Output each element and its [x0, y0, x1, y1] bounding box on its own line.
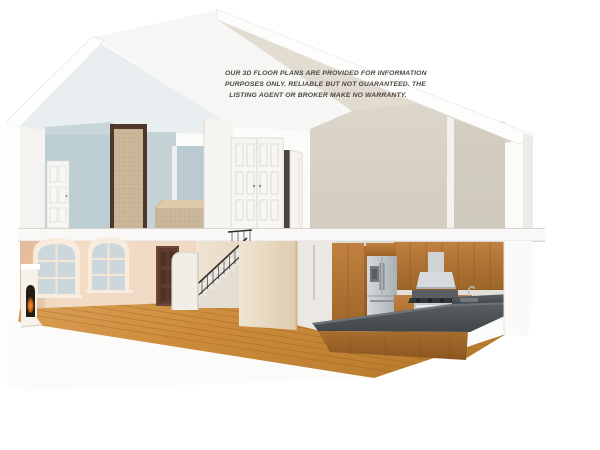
door-knob	[253, 185, 255, 187]
sink-basin	[460, 298, 478, 302]
fire-glow	[27, 297, 34, 313]
door-knob	[259, 185, 261, 187]
arched-window-right	[86, 237, 133, 293]
disclaimer-line-3: LISTING AGENT OR BROKER MAKE NO WARRANTY…	[225, 90, 411, 101]
wall-divider-trim	[447, 116, 454, 228]
fridge-handle	[380, 263, 382, 290]
right-outer-wall-face	[523, 133, 533, 228]
window-sill	[31, 295, 82, 298]
disclaimer-text: OUR 3D FLOOR PLANS ARE PROVIDED FOR INFO…	[225, 68, 411, 101]
closet-double-doors	[231, 138, 283, 230]
fridge-top-cabinet	[366, 243, 396, 256]
left-wall-return	[20, 127, 45, 241]
disclaimer-line-2: PURPOSES ONLY. RELIABLE BUT NOT GUARANTE…	[225, 79, 411, 90]
disclaimer-line-1: OUR 3D FLOOR PLANS ARE PROVIDED FOR INFO…	[225, 68, 411, 79]
right-wall-panel	[454, 121, 505, 228]
window-sill	[86, 290, 133, 293]
kitchen-hall-recess	[298, 241, 334, 329]
partition-wall	[239, 241, 297, 330]
bathroom-tile-wall	[110, 124, 147, 234]
stair-half-wall	[172, 252, 198, 310]
door-knob	[65, 195, 67, 197]
bedroom-door	[47, 161, 69, 228]
fridge-handle	[383, 263, 385, 290]
freezer-handle	[370, 300, 394, 302]
hallway-open-door	[284, 150, 302, 230]
floor-plan-render: OUR 3D FLOOR PLANS ARE PROVIDED FOR INFO…	[0, 0, 600, 450]
hall-wall-white	[204, 119, 233, 233]
right-cut-wall-lower	[504, 241, 532, 336]
